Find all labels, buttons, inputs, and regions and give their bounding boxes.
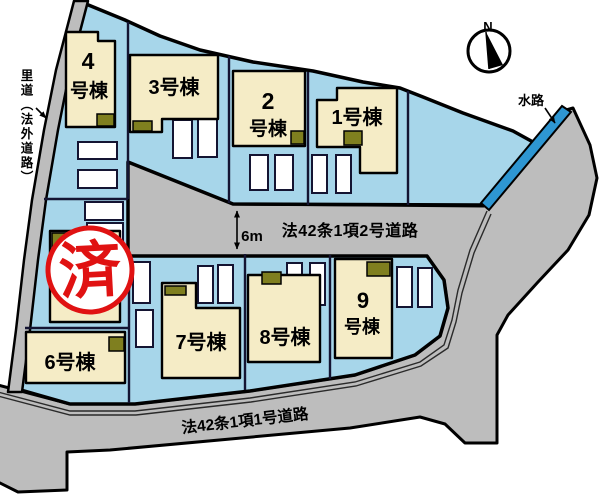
- building-3-label: 3号棟: [148, 75, 200, 99]
- building-6-label: 6号棟: [44, 350, 96, 374]
- parking-space: [133, 262, 150, 303]
- sold-stamp: 済: [46, 226, 134, 314]
- building-8-label: 8号棟: [259, 325, 311, 349]
- entrance-porch: [97, 114, 114, 126]
- waterway-label: 水路: [518, 93, 545, 108]
- parking-space: [250, 155, 268, 190]
- entrance-porch: [367, 262, 390, 276]
- building-9: 9 号棟: [335, 259, 392, 358]
- building-1-label: 1号棟: [331, 105, 383, 129]
- parking-space: [275, 155, 293, 190]
- building-8: 8号棟: [248, 272, 320, 362]
- parking-space: [198, 266, 213, 303]
- parking-space: [312, 155, 327, 193]
- entrance-porch: [133, 121, 152, 131]
- building-4-shape: [66, 32, 115, 127]
- building-9-label: 9: [357, 288, 369, 313]
- parking-space: [173, 120, 192, 158]
- building-6: 6号棟: [26, 332, 125, 383]
- compass: N: [468, 19, 510, 72]
- parking-space: [78, 142, 117, 159]
- entrance-porch: [165, 286, 186, 295]
- entrance-porch: [344, 131, 362, 145]
- building-4-label: 4: [82, 48, 95, 74]
- building-4: 4 号棟: [66, 32, 115, 127]
- satomichi-label: 里道（法外道路）: [19, 69, 32, 185]
- building-4-label2: 号棟: [70, 79, 109, 102]
- entrance-porch: [291, 131, 304, 144]
- building-2-label: 2: [262, 88, 275, 114]
- parking-space: [397, 267, 412, 307]
- parking-space: [78, 170, 117, 188]
- parking-space: [218, 265, 233, 303]
- road-width-label: 6m: [241, 228, 263, 245]
- parking-space: [136, 310, 153, 347]
- building-2-label2: 号棟: [249, 117, 288, 140]
- satomichi-arrow: [36, 108, 46, 118]
- building-9-label2: 号棟: [344, 316, 381, 337]
- parking-space: [418, 268, 432, 307]
- site-plan-map: 4 号棟 3号棟 2 号棟 1号棟 6号棟 7号棟 8号棟 9: [0, 0, 600, 502]
- entrance-porch: [109, 337, 124, 351]
- sold-stamp-text: 済: [57, 235, 124, 307]
- parking-space: [336, 155, 351, 193]
- building-7-label: 7号棟: [175, 330, 227, 354]
- site-plan: 4 号棟 3号棟 2 号棟 1号棟 6号棟 7号棟 8号棟 9: [0, 0, 600, 502]
- parking-space: [198, 118, 217, 157]
- entrance-porch: [262, 272, 281, 284]
- middle-road-label: 法42条1項2号道路: [282, 221, 419, 240]
- parking-space: [85, 202, 123, 220]
- building-2: 2 号棟: [233, 71, 305, 146]
